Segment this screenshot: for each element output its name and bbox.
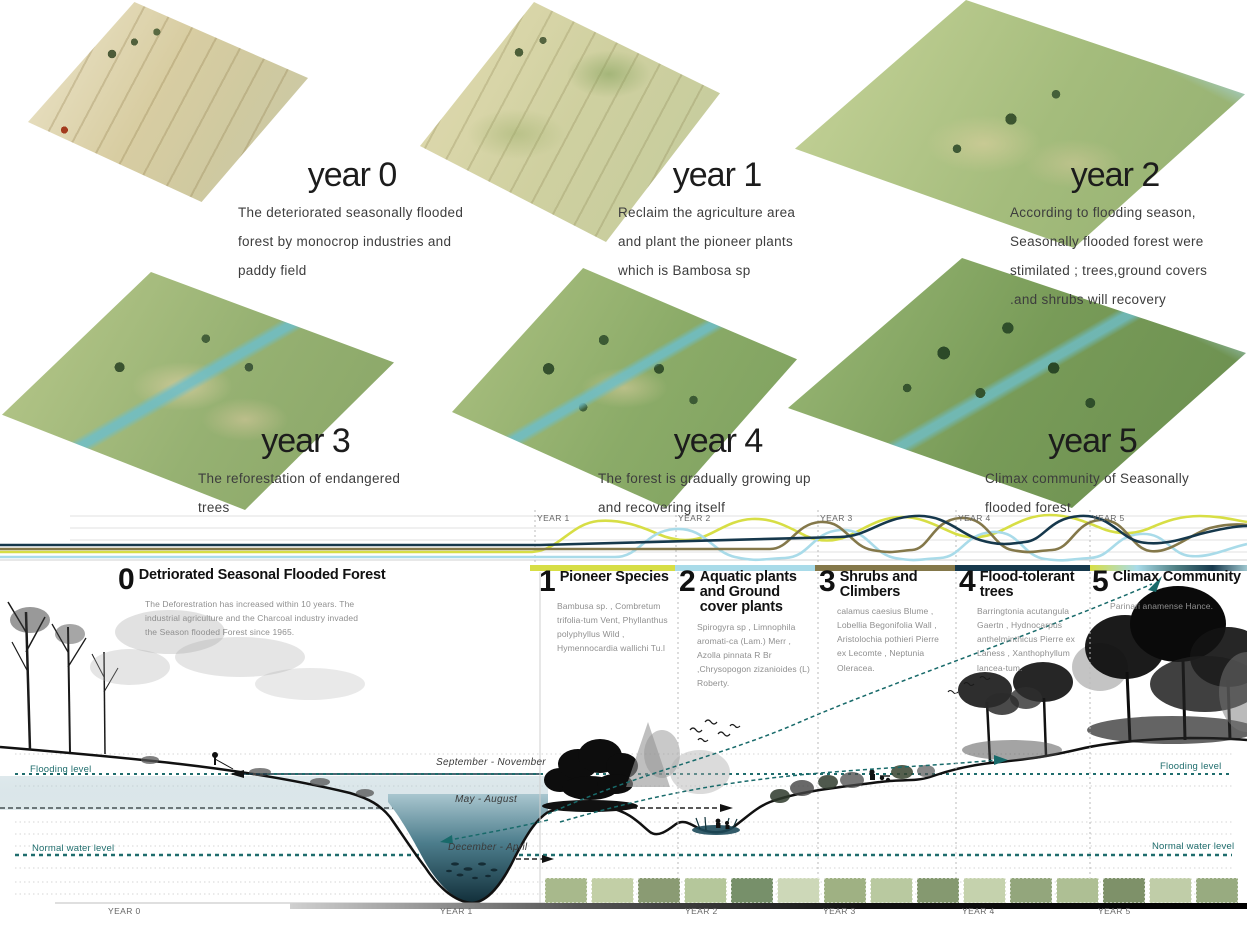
phase-4-block: 4 Flood-tolerant trees Barringtonia acut…	[959, 568, 1085, 675]
year-0-description: The deteriorated seasonally flooded fore…	[238, 198, 466, 285]
phase-1-number: 1	[539, 568, 556, 595]
phase-5-number: 5	[1092, 568, 1109, 595]
flooding-level-label-right: Flooding level	[1160, 761, 1221, 772]
phase-3-title: Shrubs and Climbers	[840, 568, 949, 600]
year-0-title: year 0	[238, 158, 466, 194]
phase-4-title: Flood-tolerant trees	[980, 568, 1085, 600]
phase-3-number: 3	[819, 568, 836, 595]
year-4-title: year 4	[598, 424, 838, 460]
fisherman-figure	[213, 753, 234, 770]
phase-2-title: Aquatic plants and Ground cover plants	[700, 568, 810, 616]
pioneer-shrub-mound	[542, 739, 638, 812]
phase-1-block: 1 Pioneer Species Bambusa sp. , Combretu…	[539, 568, 669, 655]
bottom-axis-year-3: YEAR 3	[823, 906, 856, 916]
curve-flood-tolerant-trees	[0, 516, 1247, 545]
top-axis-year-4: YEAR 4	[958, 513, 991, 523]
year-3-title: year 3	[198, 424, 413, 460]
year-2-description: According to flooding season, Seasonally…	[1010, 198, 1220, 314]
chart-year-separators	[535, 510, 1090, 562]
season-label-dec-apr: December - April	[448, 842, 527, 853]
phase-2-species: Spirogyra sp , Limnophila aromati-ca (La…	[697, 620, 810, 690]
bottom-axis-year-1: YEAR 1	[440, 906, 473, 916]
phase-5-species: Parinari anamense Hance.	[1110, 599, 1230, 613]
phase-0-number: 0	[118, 566, 135, 593]
phase-2-block: 2 Aquatic plants and Ground cover plants…	[679, 568, 810, 690]
year-1-title: year 1	[618, 158, 816, 194]
year-5-title: year 5	[985, 424, 1200, 460]
phase-0-description: The Deforestration has increased within …	[145, 597, 370, 639]
phase-0-title: Detriorated Seasonal Flooded Forest	[139, 566, 386, 583]
year-2-title: year 2	[1010, 158, 1220, 194]
season-label-sep-nov: September - November	[436, 757, 546, 768]
normal-water-level-label-right: Normal water level	[1152, 841, 1234, 852]
phase-3-block: 3 Shrubs and Climbers calamus caesius Bl…	[819, 568, 949, 675]
phase-5-block: 5 Climax Community Parinari anamense Han…	[1092, 568, 1242, 613]
top-axis-year-1: YEAR 1	[537, 513, 570, 523]
year-1-description: Reclaim the agriculture area and plant t…	[618, 198, 816, 285]
bottom-axis-year-5: YEAR 5	[1098, 906, 1131, 916]
december-april-arrow-right	[542, 855, 554, 863]
caption-year-2: year 2 According to flooding season, Sea…	[1010, 158, 1220, 314]
top-axis-year-2: YEAR 2	[678, 513, 711, 523]
species-photo-thumbnails	[545, 878, 1238, 903]
restoration-poster: year 0 The deteriorated seasonally flood…	[0, 0, 1247, 926]
caption-year-0: year 0 The deteriorated seasonally flood…	[238, 158, 466, 285]
phase-3-species: calamus caesius Blume , Lobellia Begonif…	[837, 604, 947, 674]
normal-water-level-label-left: Normal water level	[32, 843, 114, 854]
phase-2-number: 2	[679, 568, 696, 595]
phase-0-block: 0 Detriorated Seasonal Flooded Forest Th…	[118, 566, 388, 639]
bottom-axis-year-0: YEAR 0	[108, 906, 141, 916]
may-august-arrowhead	[720, 804, 733, 812]
caption-year-1: year 1 Reclaim the agriculture area and …	[618, 158, 816, 285]
bicycle-figures	[869, 769, 890, 782]
season-label-may-aug: May - August	[455, 794, 517, 805]
flooding-level-label-left: Flooding level	[30, 764, 91, 775]
bird-flock	[690, 720, 740, 742]
flood-tolerant-trees-silhouette	[958, 662, 1073, 762]
bottom-axis-year-4: YEAR 4	[962, 906, 995, 916]
phase-4-number: 4	[959, 568, 976, 595]
phase-1-species: Bambusa sp. , Combretum trifolia-tum Ven…	[557, 599, 669, 655]
phase-4-species: Barringtonia acutangula Gaertn , Hydnoca…	[977, 604, 1085, 674]
phase-1-title: Pioneer Species	[560, 568, 669, 585]
top-axis-year-5: YEAR 5	[1092, 513, 1125, 523]
top-axis-year-3: YEAR 3	[820, 513, 853, 523]
bottom-axis-year-2: YEAR 2	[685, 906, 718, 916]
growth-curves-chart	[0, 504, 1247, 566]
phase-5-title: Climax Community	[1113, 568, 1241, 585]
